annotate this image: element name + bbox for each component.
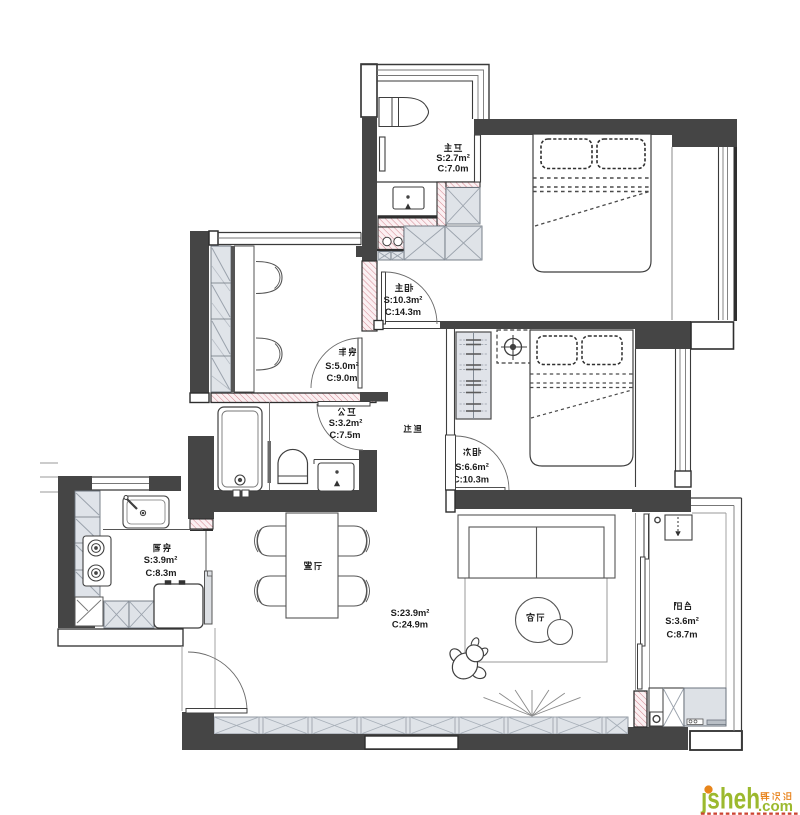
svg-text:S:23.9m²: S:23.9m² (391, 608, 430, 618)
svg-text:C:24.9m: C:24.9m (392, 620, 428, 630)
svg-text:S:2.7m²: S:2.7m² (436, 153, 470, 163)
svg-text:S:3.2m²: S:3.2m² (329, 418, 363, 428)
svg-text:C:8.3m: C:8.3m (145, 568, 176, 578)
svg-text:C:10.3m: C:10.3m (453, 475, 489, 485)
svg-text:S:3.9m²: S:3.9m² (144, 555, 178, 565)
svg-text:S:10.3m²: S:10.3m² (384, 295, 423, 305)
svg-text:S:5.0m²: S:5.0m² (325, 361, 359, 371)
svg-text:S:3.6m²: S:3.6m² (665, 616, 699, 626)
svg-text:C:7.0m: C:7.0m (437, 164, 468, 174)
svg-text:C:7.5m: C:7.5m (329, 430, 360, 440)
svg-text:C:8.7m: C:8.7m (666, 630, 697, 640)
svg-text:C:14.3m: C:14.3m (385, 307, 421, 317)
svg-text:C:9.0m: C:9.0m (326, 373, 357, 383)
svg-text:S:6.6m²: S:6.6m² (455, 462, 489, 472)
